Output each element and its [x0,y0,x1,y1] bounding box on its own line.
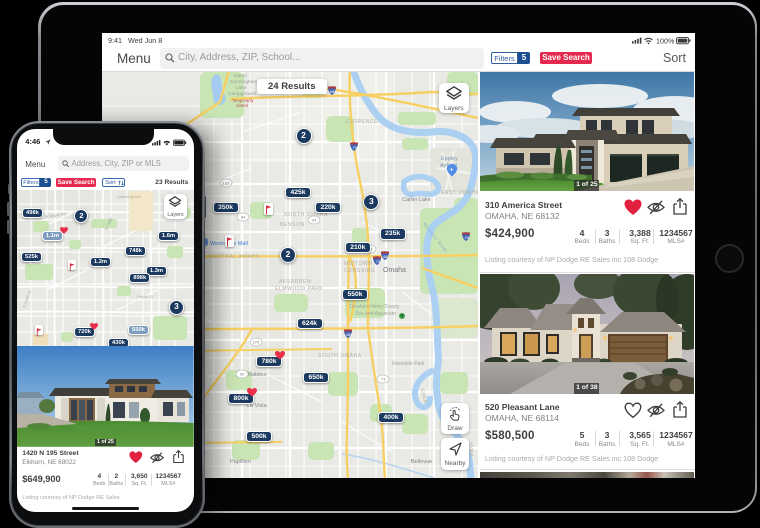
svg-text:Campground: Campground [228,91,256,97]
svg-text:Pacific St: Pacific St [137,295,154,299]
svg-text:SOUTH OMAHA: SOUTH OMAHA [318,353,362,359]
svg-text:100%: 100% [656,36,675,44]
svg-text:CROSSING: CROSSING [344,268,375,274]
svg-text:Bellevue: Bellevue [411,459,432,465]
svg-text:University Ave: University Ave [117,195,141,199]
svg-text:MIDTOWN: MIDTOWN [344,261,373,267]
svg-text:Carter Lake: Carter Lake [402,197,431,203]
svg-text:FLORENCE: FLORENCE [346,119,378,125]
svg-text:CENTRAL OMAHA: CENTRAL OMAHA [209,254,260,260]
svg-text:Riverside Park: Riverside Park [392,361,425,367]
svg-text:50: 50 [240,371,245,376]
svg-text:Zoo and Aquarium: Zoo and Aquarium [355,311,396,317]
svg-text:75: 75 [353,145,358,150]
svg-text:Eppley: Eppley [441,156,458,162]
svg-text:Lake: Lake [236,85,247,91]
svg-text:29: 29 [465,235,470,240]
svg-text:275: 275 [253,339,260,344]
svg-text:Omaha: Omaha [383,267,406,274]
svg-text:EAST OMAHA: EAST OMAHA [441,190,478,196]
svg-text:94: 94 [312,217,317,222]
svg-text:Papillion: Papillion [230,459,251,465]
svg-text:AKSARBEN:: AKSARBEN: [279,279,313,285]
svg-text:Omaha's Henry Doorly: Omaha's Henry Doorly [349,304,400,310]
svg-text:133: 133 [223,180,230,185]
svg-text:Ralston: Ralston [248,372,267,378]
svg-text:BENSON: BENSON [280,222,305,228]
svg-text:480: 480 [346,332,353,337]
svg-text:480: 480 [383,254,390,259]
svg-text:75: 75 [376,259,381,264]
svg-text:ELMWOOD PARK: ELMWOOD PARK [275,286,323,292]
svg-text:Glenn: Glenn [234,73,247,79]
svg-text:680: 680 [330,89,337,94]
svg-text:closed: closed [236,103,249,108]
svg-text:71: 71 [381,376,386,381]
svg-text:✈: ✈ [449,166,454,173]
svg-text:Cunningham: Cunningham [230,79,257,85]
svg-text:64: 64 [241,214,246,219]
